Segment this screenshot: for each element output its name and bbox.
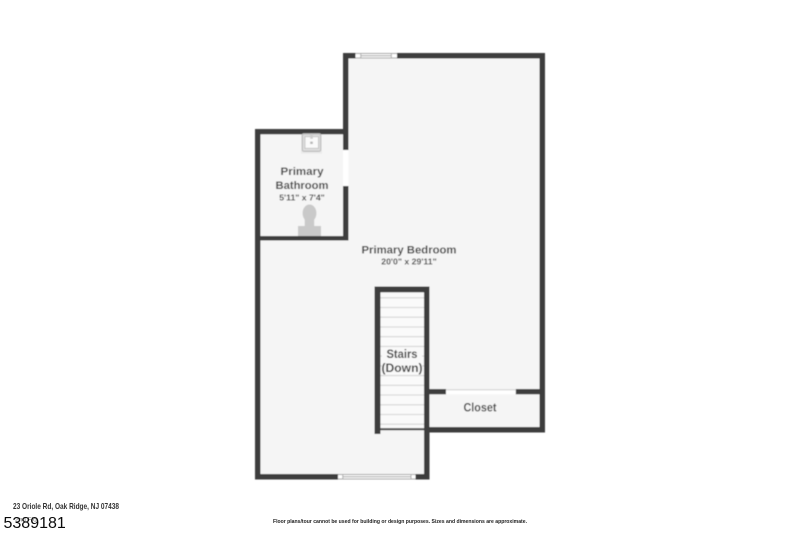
svg-text:20'0" x 29'11": 20'0" x 29'11" <box>381 256 437 266</box>
svg-text:5389181: 5389181 <box>4 515 66 532</box>
svg-text:5'11" x 7'4": 5'11" x 7'4" <box>279 192 325 202</box>
svg-text:Bathroom: Bathroom <box>276 180 329 192</box>
svg-text:(Down): (Down) <box>382 361 423 375</box>
svg-text:Floor plans/tour cannot be use: Floor plans/tour cannot be used for buil… <box>273 519 527 525</box>
svg-text:Primary Bedroom: Primary Bedroom <box>362 244 457 256</box>
svg-text:Stairs: Stairs <box>387 347 418 361</box>
svg-text:Primary: Primary <box>281 166 325 178</box>
svg-text:Closet: Closet <box>464 400 497 414</box>
svg-text:23 Oriole Rd, Oak Ridge, NJ 07: 23 Oriole Rd, Oak Ridge, NJ 07438 <box>13 502 119 511</box>
